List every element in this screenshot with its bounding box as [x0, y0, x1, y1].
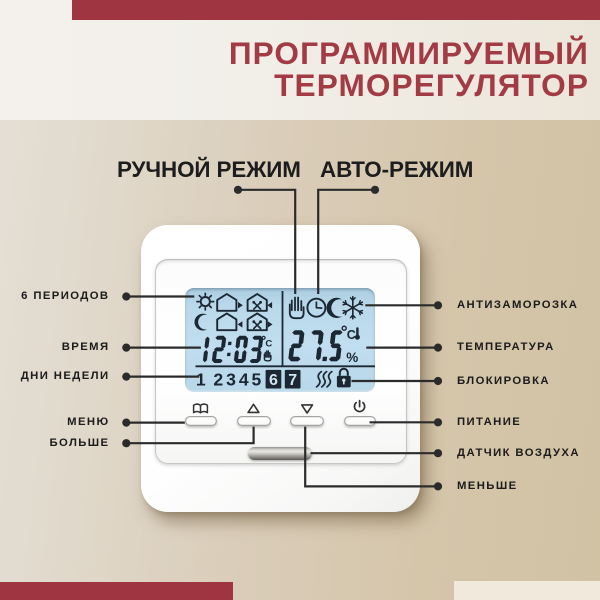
svg-text:C: C [265, 338, 272, 349]
svg-text:C: C [347, 328, 356, 342]
svg-text:7: 7 [288, 372, 297, 389]
svg-text:6: 6 [269, 372, 278, 389]
svg-text:5: 5 [252, 369, 262, 389]
svg-text:1: 1 [196, 369, 206, 389]
svg-text:2: 2 [213, 369, 223, 389]
svg-text:3: 3 [226, 369, 236, 389]
svg-text:4: 4 [239, 369, 249, 389]
svg-text:%: % [346, 350, 358, 365]
